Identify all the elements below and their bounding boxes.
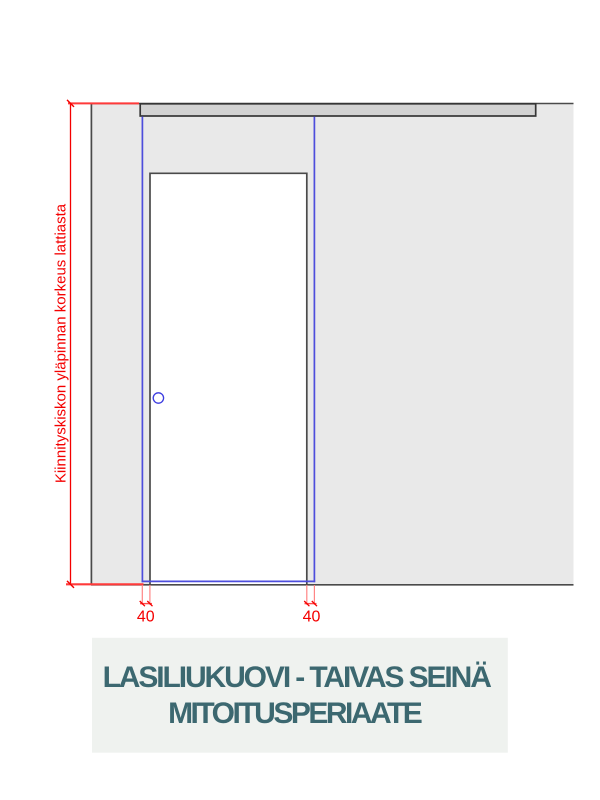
svg-text:MITOITUSPERIAATE: MITOITUSPERIAATE bbox=[168, 697, 422, 730]
svg-text:40: 40 bbox=[137, 609, 155, 626]
svg-text:LASILIUKUOVI - TAIVAS SEINÄ: LASILIUKUOVI - TAIVAS SEINÄ bbox=[103, 661, 492, 694]
svg-text:Kiinnityskiskon yläpinnan kork: Kiinnityskiskon yläpinnan korkeus lattia… bbox=[53, 203, 70, 483]
svg-text:40: 40 bbox=[303, 609, 321, 626]
